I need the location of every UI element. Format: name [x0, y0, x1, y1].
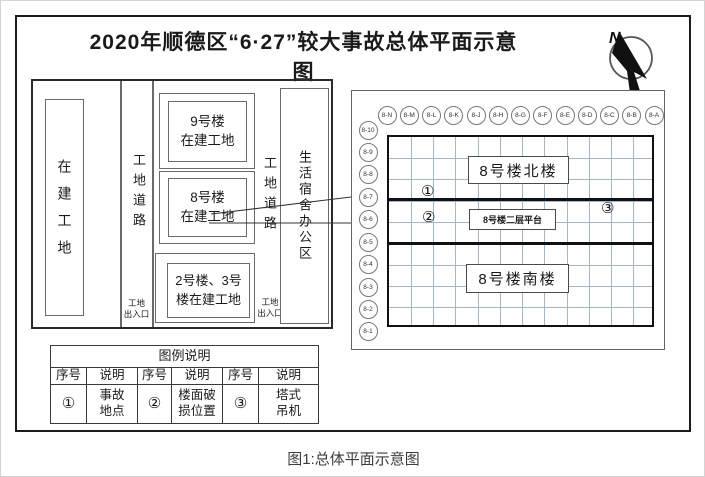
column-axis-bubble: 8-M: [400, 106, 419, 125]
row-axis-bubble: 8-9: [359, 143, 378, 162]
north-building-text: 8号楼北楼: [479, 160, 557, 181]
row-axis-bubble: 8-3: [359, 278, 378, 297]
legend-title: 图例说明: [51, 346, 319, 368]
grid-line-vertical: [433, 137, 434, 325]
south-building-label: 8号楼南楼: [466, 264, 569, 293]
figure-canvas: 2020年顺德区“6·27”较大事故总体平面示意图 N 在建工地 工地道路 工地…: [0, 0, 705, 477]
row-axis-bubble: 8-5: [359, 233, 378, 252]
grid-line-vertical: [411, 137, 412, 325]
row-axis-bubble: 8-8: [359, 165, 378, 184]
diagram-title: 2020年顺德区“6·27”较大事故总体平面示意图: [81, 26, 526, 86]
legend-desc-1: 事故 地点: [87, 385, 138, 424]
column-axis-bubble: 8-A: [645, 106, 664, 125]
marker-tower-crane: ③: [601, 199, 614, 217]
compass: N: [597, 13, 677, 98]
row-axis-bubble: 8-4: [359, 255, 378, 274]
column-axis-bubble: 8-B: [622, 106, 641, 125]
gate1-label: 工地 出入口: [120, 298, 153, 320]
marker-floor-damage: ②: [422, 208, 435, 226]
column-axis-bubble: 8-C: [600, 106, 619, 125]
building9-block: 9号楼 在建工地: [168, 101, 247, 162]
road1-left-line: [120, 81, 122, 327]
column-axis-bubble: 8-N: [378, 106, 397, 125]
legend-symbol-3: ③: [223, 385, 259, 424]
row-axis-bubble: 8-7: [359, 188, 378, 207]
legend-header-cell: 序号: [138, 368, 172, 385]
section-divider-2: [389, 242, 652, 245]
column-axis-bubble: 8-J: [467, 106, 486, 125]
row-axis-bubble: 8-6: [359, 210, 378, 229]
column-axis-bubble: 8-H: [489, 106, 508, 125]
legend-header-cell: 序号: [223, 368, 259, 385]
building23-block: 2号楼、3号 楼在建工地: [167, 263, 250, 318]
grid-line-vertical: [611, 137, 612, 325]
grid-line-vertical: [589, 137, 590, 325]
column-axis-bubble: 8-G: [511, 106, 530, 125]
south-building-text: 8号楼南楼: [478, 268, 556, 289]
legend-header-cell: 序号: [51, 368, 87, 385]
legend-header-cell: 说明: [172, 368, 223, 385]
road2-label: 工地道路: [260, 156, 279, 236]
column-axis-bubble: 8-K: [444, 106, 463, 125]
legend-desc-2: 楼面破 损位置: [172, 385, 223, 424]
grid-line-vertical: [455, 137, 456, 325]
row-axis-bubble: 8-1: [359, 322, 378, 341]
platform-text: 8号楼二层平台: [483, 213, 542, 226]
living-area-block: 生活宿舍办公区: [280, 88, 329, 324]
road1-right-line: [152, 81, 154, 327]
row-axis-bubble: 8-2: [359, 300, 378, 319]
column-axis-bubble: 8-F: [533, 106, 552, 125]
construction-site-block: 在建工地: [45, 99, 84, 316]
row-axis-bubble: 8-10: [359, 121, 378, 140]
building8-block: 8号楼 在建工地: [168, 178, 247, 237]
column-axis-bubble: 8-L: [422, 106, 441, 125]
column-axis-bubble: 8-D: [578, 106, 597, 125]
legend-desc-3: 塔式 吊机: [259, 385, 319, 424]
grid-line-horizontal: [389, 307, 652, 308]
legend-header-cell: 说明: [87, 368, 138, 385]
legend-symbol-2: ②: [138, 385, 172, 424]
grid-line-vertical: [633, 137, 634, 325]
legend-header-cell: 说明: [259, 368, 319, 385]
legend-symbol-1: ①: [51, 385, 87, 424]
road1-label: 工地道路: [129, 153, 148, 233]
marker-accident-location: ①: [421, 182, 434, 200]
column-axis-bubble: 8-E: [556, 106, 575, 125]
platform-label: 8号楼二层平台: [469, 209, 556, 230]
figure-caption: 图1:总体平面示意图: [1, 448, 705, 469]
north-building-label: 8号楼北楼: [468, 156, 569, 184]
legend-table: 图例说明 序号 说明 序号 说明 序号 说明 ① 事故 地点 ② 楼面破 损位置…: [50, 345, 319, 424]
